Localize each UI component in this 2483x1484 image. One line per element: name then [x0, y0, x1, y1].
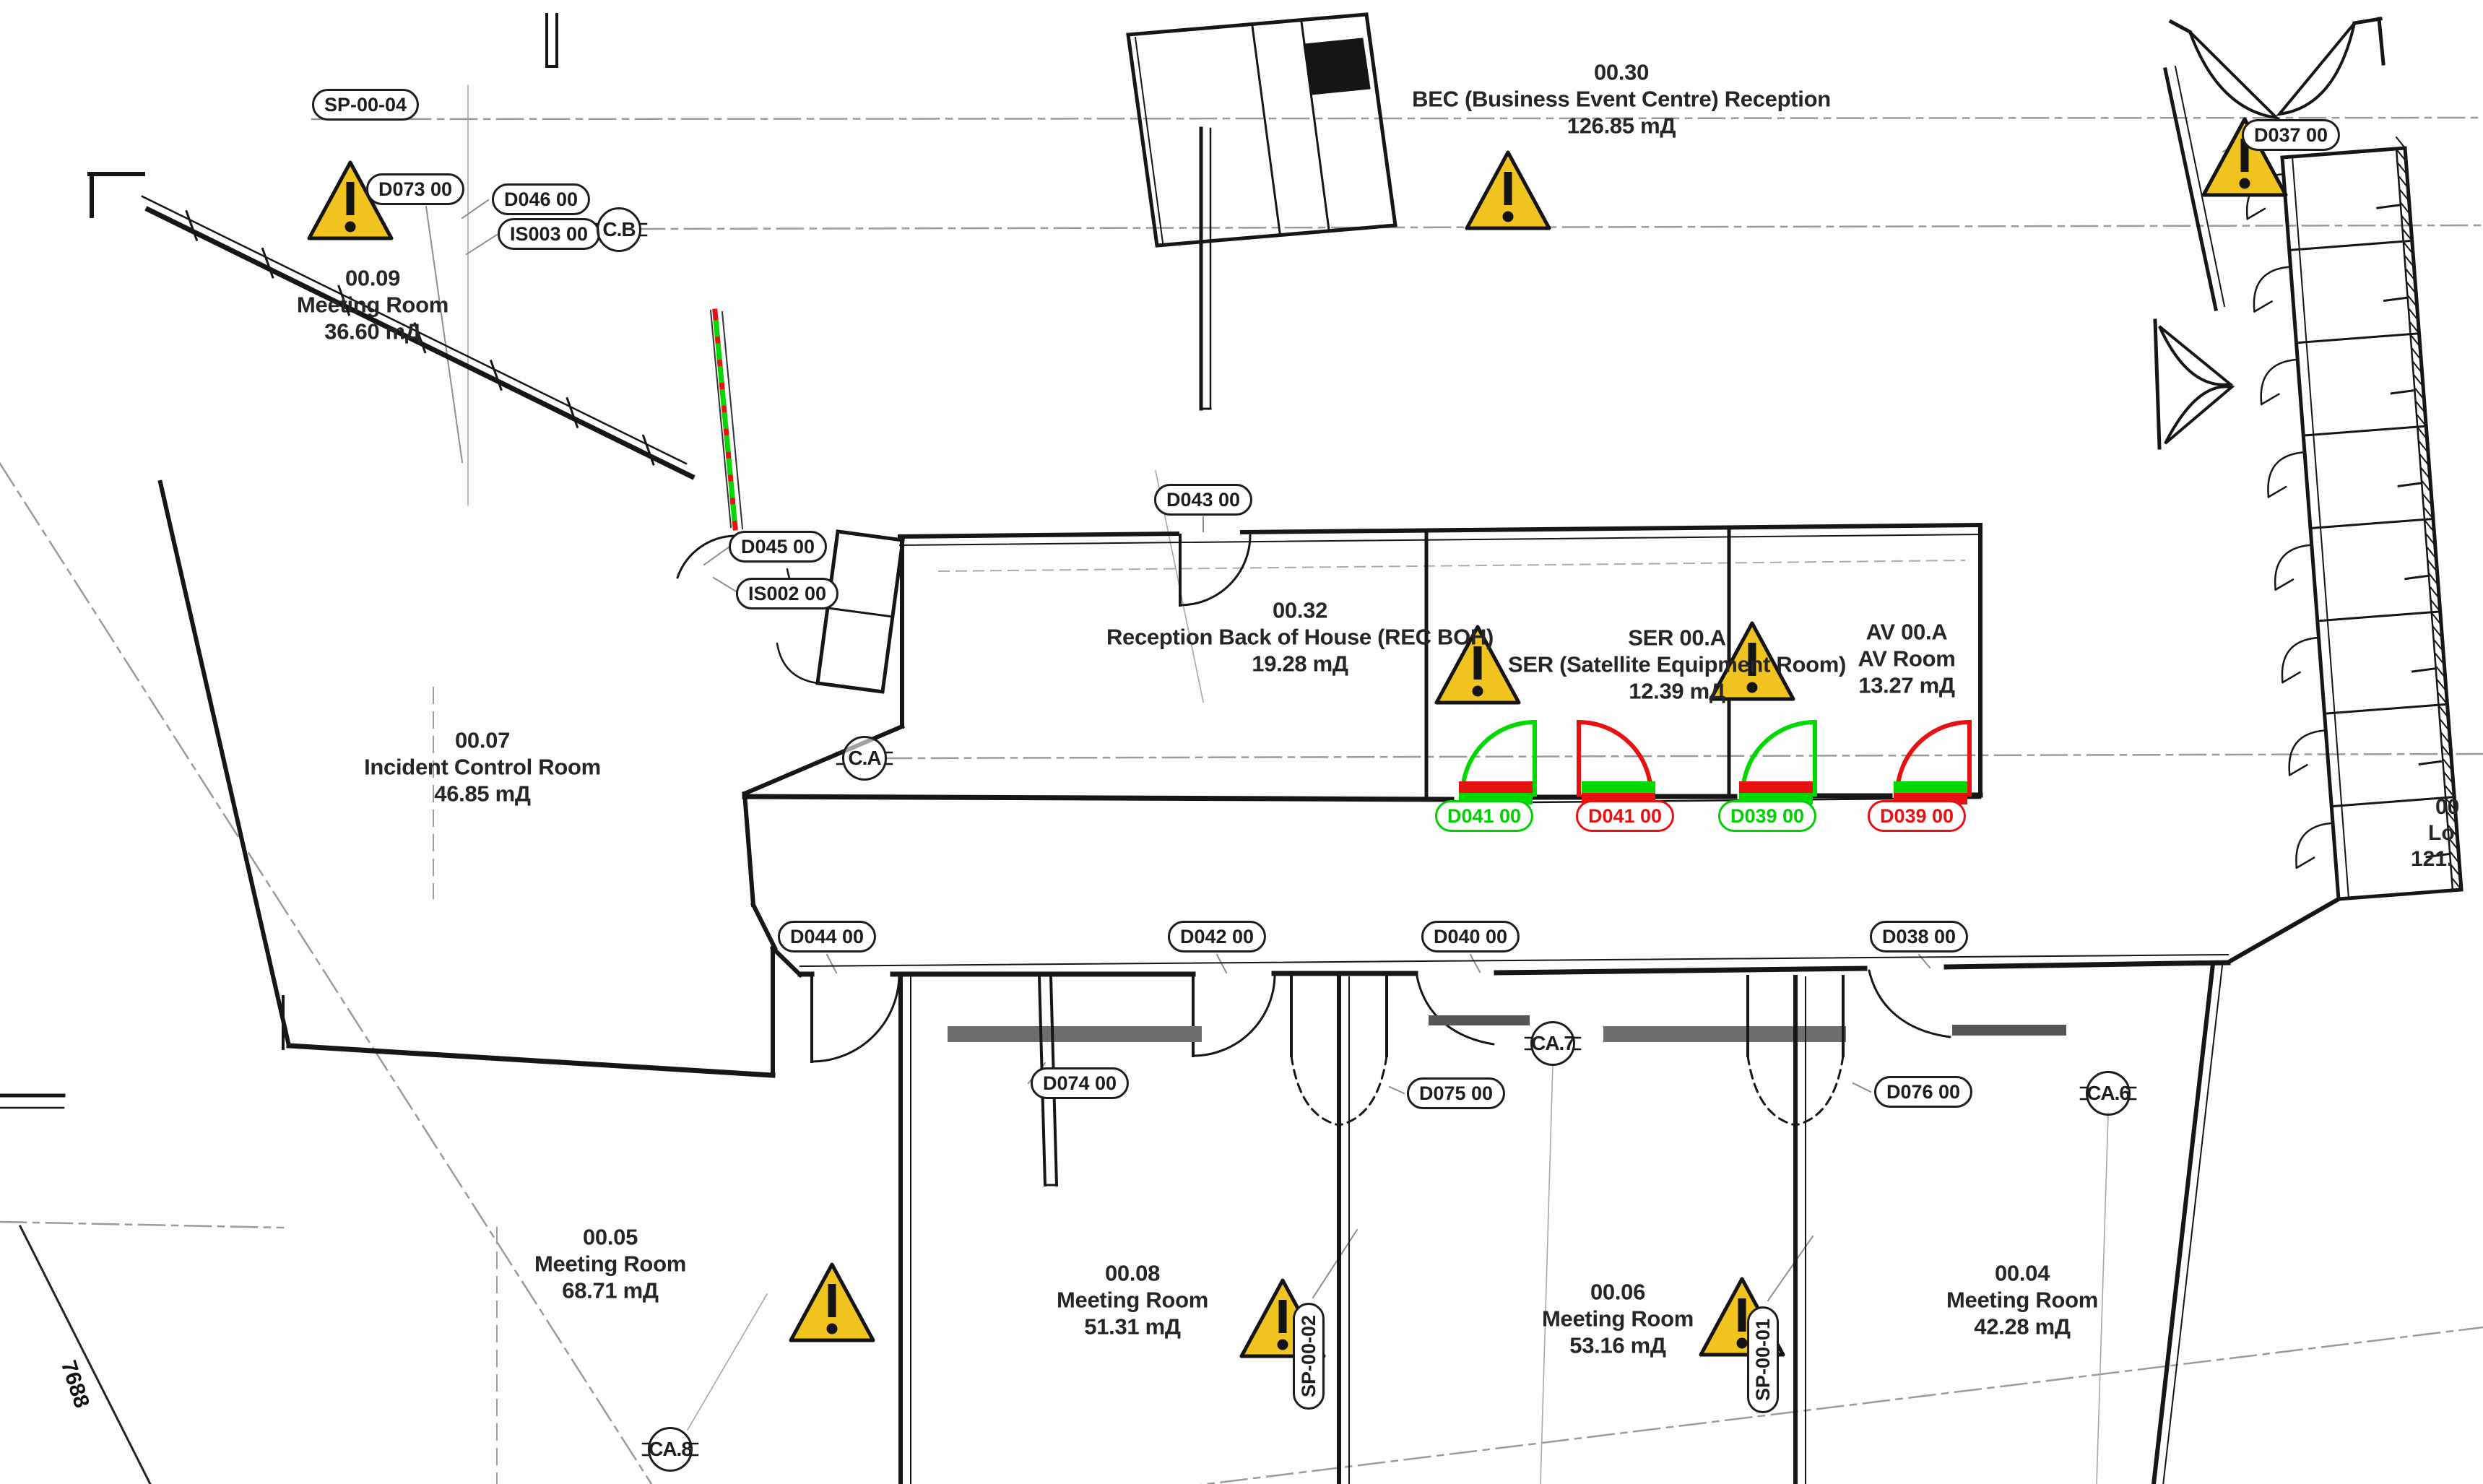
grid-reference: CA.6 [2086, 1071, 2131, 1116]
door-tag[interactable]: SP-00-02 [1293, 1303, 1325, 1410]
room-name: Meeting Room [297, 292, 448, 318]
room-label: 00.08Meeting Room51.31 mД [1057, 1260, 1208, 1340]
room-label: 00.07Incident Control Room46.85 mД [364, 727, 601, 807]
room-name: Meeting Room [1542, 1306, 1694, 1332]
room-name: AV Room [1858, 646, 1955, 672]
room-number: 00.04 [1946, 1260, 2098, 1287]
door-tag[interactable]: SP-00-01 [1747, 1306, 1779, 1413]
door-tag[interactable]: IS002 00 [736, 578, 838, 609]
room-name: Meeting Room [1946, 1287, 2098, 1314]
room-label: 00.06Meeting Room53.16 mД [1542, 1279, 1694, 1359]
warning-icon [791, 1264, 873, 1340]
room-area: 51.31 mД [1057, 1314, 1208, 1340]
warning-icon [1467, 152, 1549, 228]
room-number: SER 00.A [1508, 625, 1846, 651]
room-number: 00.07 [364, 727, 601, 754]
room-area: 42.28 mД [1946, 1314, 2098, 1340]
door-tag[interactable]: D073 00 [366, 173, 464, 205]
door-tag[interactable]: SP-00-04 [312, 89, 419, 121]
room-area: 68.71 mД [534, 1277, 686, 1304]
room-label-partial: 00 [2435, 794, 2459, 820]
door-tag[interactable]: D045 00 [729, 531, 827, 563]
room-number: 00.32 [1106, 597, 1494, 624]
door-tag[interactable]: D043 00 [1154, 484, 1252, 516]
door-tag[interactable]: D037 00 [2242, 119, 2340, 151]
room-number: 00.06 [1542, 1279, 1694, 1306]
room-area: 13.27 mД [1858, 672, 1955, 699]
room-name: BEC (Business Event Centre) Reception [1412, 86, 1831, 113]
room-name: Meeting Room [1057, 1287, 1208, 1314]
room-name: SER (Satellite Equipment Room) [1508, 651, 1846, 678]
room-area: 53.16 mД [1542, 1332, 1694, 1359]
room-area: 36.60 mД [297, 318, 448, 345]
room-number: 00.30 [1412, 59, 1831, 86]
door-tag[interactable]: D039 00 [1718, 800, 1816, 832]
room-label-partial: 121. [2411, 846, 2453, 872]
room-label: 00.09Meeting Room36.60 mД [297, 265, 448, 345]
room-number: 00.08 [1057, 1260, 1208, 1287]
room-label: 00.04Meeting Room42.28 mД [1946, 1260, 2098, 1340]
room-label: 00.32Reception Back of House (REC BOH)19… [1106, 597, 1494, 677]
door-tag[interactable]: IS003 00 [498, 218, 600, 250]
room-area: 19.28 mД [1106, 651, 1494, 677]
door-tag[interactable]: D040 00 [1421, 921, 1520, 953]
door-tag[interactable]: D046 00 [492, 183, 590, 215]
grid-reference: C.A [842, 736, 887, 781]
floor-plan-canvas: 00.09Meeting Room36.60 mД00.30BEC (Busin… [0, 0, 2483, 1484]
room-label: SER 00.ASER (Satellite Equipment Room)12… [1508, 625, 1846, 705]
room-label: 00.30BEC (Business Event Centre) Recepti… [1412, 59, 1831, 139]
room-label-partial: Lo [2428, 820, 2455, 846]
door-tag[interactable]: D074 00 [1031, 1067, 1129, 1099]
room-label: AV 00.AAV Room13.27 mД [1858, 619, 1955, 699]
door-tag[interactable]: D076 00 [1874, 1076, 1972, 1108]
room-number: AV 00.A [1858, 619, 1955, 646]
door-tag[interactable]: D041 00 [1576, 800, 1674, 832]
grid-reference: CA.7 [1530, 1021, 1575, 1066]
grid-reference: CA.8 [648, 1427, 693, 1472]
room-name: Meeting Room [534, 1251, 686, 1277]
room-label: 00.05Meeting Room68.71 mД [534, 1224, 686, 1304]
room-number: 00.09 [297, 265, 448, 292]
door-tag[interactable]: D041 00 [1435, 800, 1533, 832]
door-tag[interactable]: D038 00 [1870, 921, 1968, 953]
room-area: 126.85 mД [1412, 113, 1831, 139]
door-tag[interactable]: D044 00 [778, 921, 876, 953]
warning-icons [309, 119, 2286, 1356]
room-name: Reception Back of House (REC BOH) [1106, 624, 1494, 651]
room-area: 46.85 mД [364, 781, 601, 807]
grid-reference: C.B [597, 207, 641, 252]
room-area: 12.39 mД [1508, 678, 1846, 705]
door-tag[interactable]: D042 00 [1168, 921, 1266, 953]
door-tag[interactable]: D075 00 [1407, 1077, 1505, 1109]
room-name: Incident Control Room [364, 754, 601, 781]
room-number: 00.05 [534, 1224, 686, 1251]
door-tag[interactable]: D039 00 [1868, 800, 1966, 832]
